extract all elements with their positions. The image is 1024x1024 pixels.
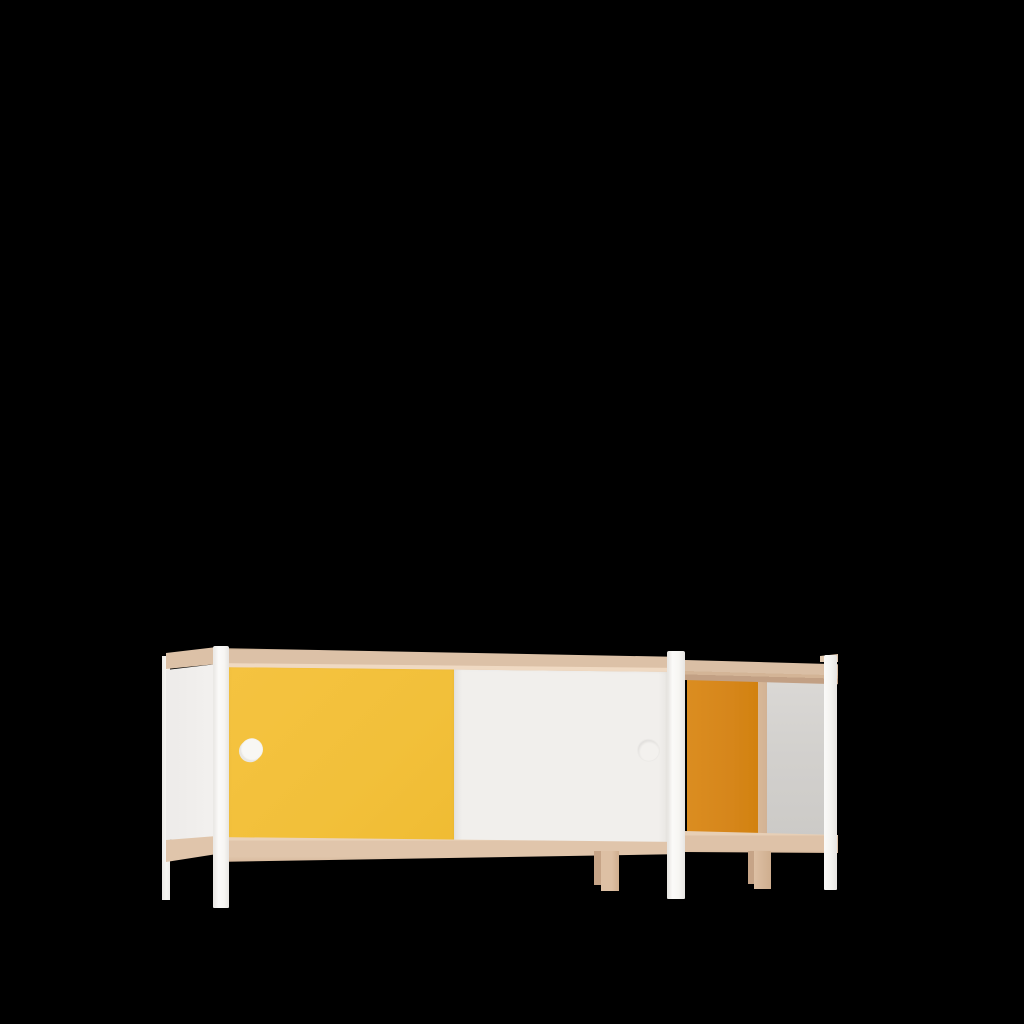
product-image: [0, 0, 1024, 1024]
yellow-door-handle: [241, 738, 263, 760]
middle-white-post: [667, 651, 685, 899]
right-wood-leg: [754, 851, 771, 889]
white-sliding-door: [454, 667, 667, 846]
sideboard-left-end-panel: [166, 662, 217, 840]
front-left-white-post: [213, 646, 229, 908]
yellow-sliding-door: [229, 664, 454, 843]
open-compartment-back-panel: [687, 678, 758, 834]
right-white-leg: [824, 655, 837, 890]
open-compartment-divider: [758, 675, 767, 842]
middle-wood-leg: [601, 851, 619, 891]
open-compartment-top-rail: [685, 660, 838, 684]
open-compartment-side-panel: [767, 672, 824, 838]
white-door-handle: [638, 740, 659, 761]
